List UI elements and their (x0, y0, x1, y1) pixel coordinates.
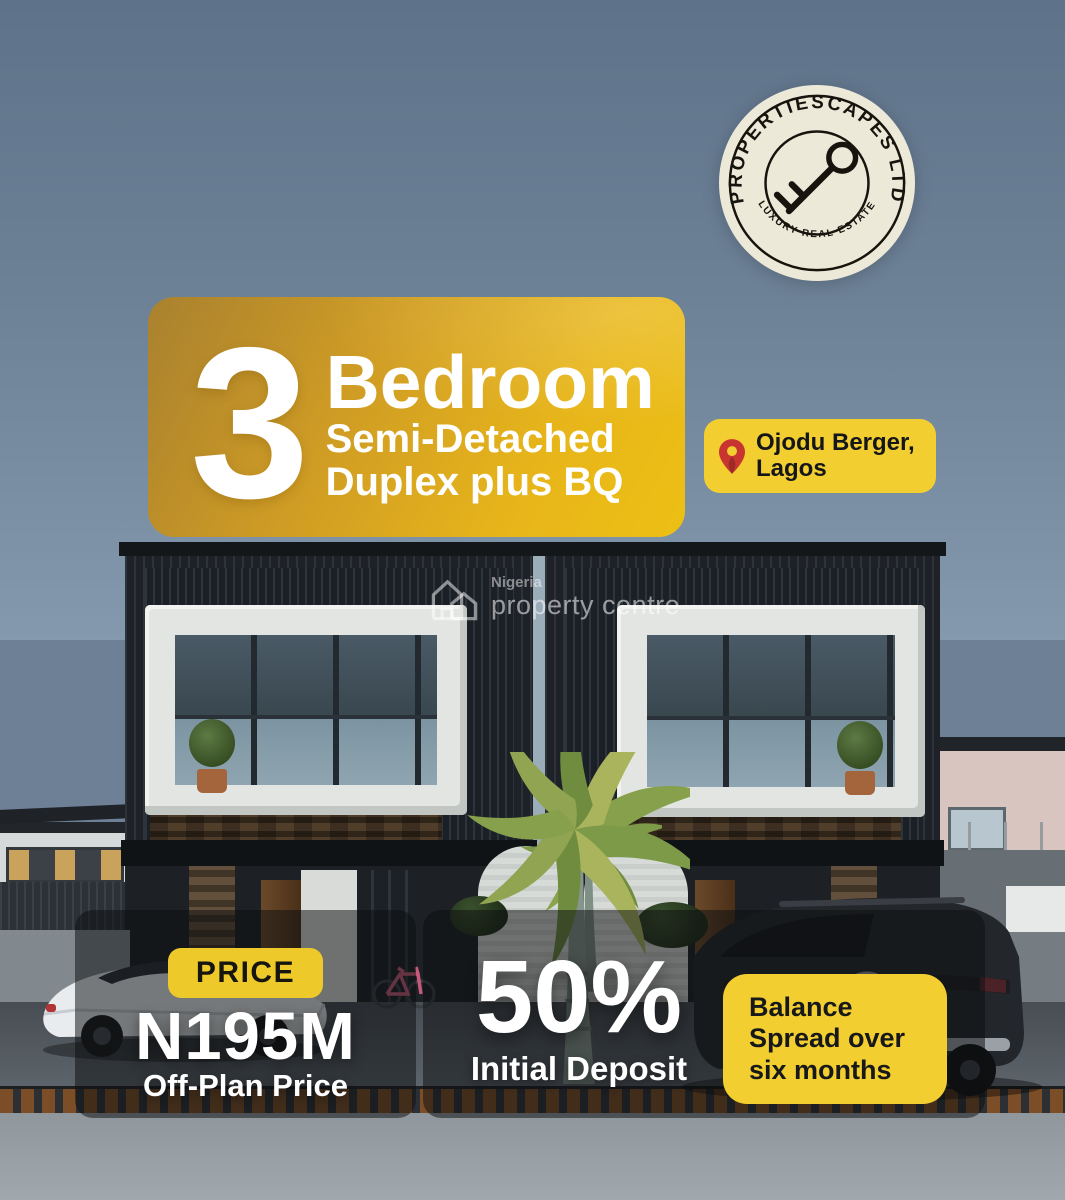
banner-subtitle-2: Duplex plus BQ (326, 461, 655, 504)
balance-line1: Balance (749, 992, 947, 1023)
balance-badge: Balance Spread over six months (723, 974, 947, 1104)
property-banner: 3 Bedroom Semi-Detached Duplex plus BQ (148, 297, 685, 537)
location-line1: Ojodu Berger, (756, 430, 915, 456)
watermark-line2: property centre (491, 591, 680, 619)
watermark: Nigeria property centre (428, 572, 680, 622)
map-pin-icon (719, 439, 745, 474)
house-icon (428, 572, 480, 622)
window-frame-left (145, 605, 467, 815)
watermark-line1: Nigeria (491, 575, 680, 592)
price-value: N195M (135, 1003, 356, 1070)
property-flyer: Nigeria property centre 3 Bedroom Semi-D… (0, 0, 1065, 1200)
price-panel: PRICE N195M Off-Plan Price (75, 910, 416, 1118)
balcony-plant (183, 719, 241, 793)
deposit-panel: 50% Initial Deposit Balance Spread over … (423, 910, 985, 1118)
banner-title: Bedroom (326, 347, 655, 418)
deposit-value: 50% (429, 954, 729, 1041)
plant-pot (197, 769, 227, 793)
price-caption: Off-Plan Price (143, 1070, 348, 1103)
plant-leaves (837, 721, 883, 769)
plant-pot (845, 771, 875, 795)
deposit-caption: Initial Deposit (429, 1050, 729, 1088)
balance-line3: six months (749, 1055, 947, 1086)
bedroom-count: 3 (190, 337, 310, 537)
location-badge: Ojodu Berger, Lagos (704, 419, 936, 493)
background-house-windows (6, 847, 124, 883)
plant-leaves (189, 719, 235, 767)
banner-subtitle-1: Semi-Detached (326, 418, 655, 461)
location-line2: Lagos (756, 456, 915, 482)
balance-line2: Spread over (749, 1023, 947, 1054)
brand-logo: PROPERTIESCAPES LTD LUXURY REAL ESTATE (718, 84, 916, 282)
concrete-road (0, 1113, 1065, 1200)
price-chip: PRICE (168, 948, 323, 998)
balcony-plant (831, 721, 889, 795)
